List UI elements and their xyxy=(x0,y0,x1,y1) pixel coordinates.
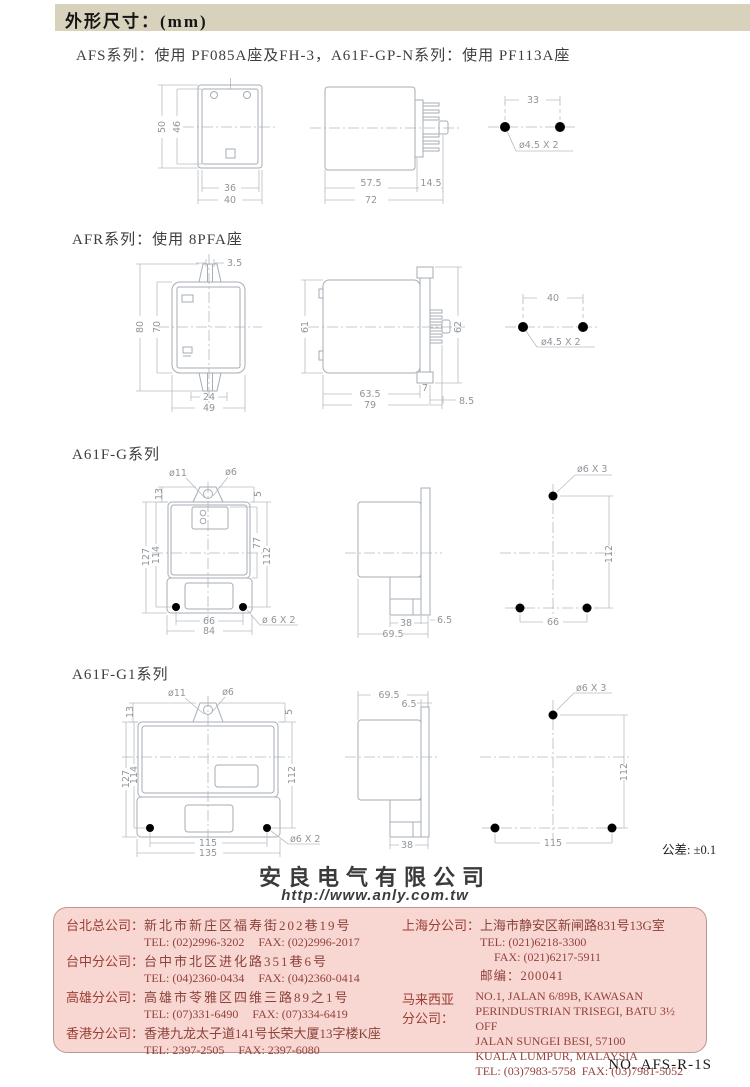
a61fg1-dim-width-outer: 135 xyxy=(199,848,217,859)
contact-address: 台中市北区进化路351巷6号 xyxy=(144,954,328,969)
a61fg1-dim-height-inner: 114 xyxy=(129,766,140,784)
a61fg1-dim-total-depth: 69.5 xyxy=(378,690,399,701)
a61fg1-top-hole2-label: ø6 xyxy=(222,687,234,698)
afr-dim-tab-slot: 3.5 xyxy=(227,258,242,269)
a61fg-drawings: ø11 ø6 13 5 127 114 77 112 66 84 ø xyxy=(0,458,750,658)
contact-row-shanghai: 上海分公司：上海市静安区新闸路831号13G室 TEL: (021)6218-3… xyxy=(402,915,698,984)
afs-hole-pattern: 33 ø4.5 X 2 xyxy=(488,95,575,151)
contact-phone: TEL: (07)331-6490FAX: (07)334-6419 xyxy=(66,1007,402,1022)
afr-dim-flange: 7 xyxy=(422,383,428,394)
contact-label: 高雄分公司： xyxy=(66,990,144,1005)
contact-row-hongkong: 香港分公司：香港九龙太子道141号长荣大厦13字楼K座 TEL: 2397-25… xyxy=(66,1023,402,1058)
a61fg-dim-vertical-pitch: 112 xyxy=(604,545,615,563)
tel: TEL: (021)6218-3300 xyxy=(480,935,586,950)
afr-dim-width-outer: 49 xyxy=(203,403,215,414)
afr-drawings: 3.5 80 70 24 49 61 62 63.5 7 79 8. xyxy=(0,248,750,433)
afr-dim-height-outer: 80 xyxy=(135,321,146,333)
contact-address: 新北市新庄区福寿街202巷19号 xyxy=(144,918,352,933)
a61fg1-section-title: A61F-G1系列 xyxy=(72,663,169,684)
a61fg-hole-label: ø6 X 3 xyxy=(577,464,607,475)
contact-label: 香港分公司： xyxy=(66,1026,144,1041)
a61fg-front-view: ø11 ø6 13 5 127 114 77 112 66 84 ø xyxy=(141,467,298,637)
a61fg-top-hole-label: ø11 xyxy=(169,468,187,479)
postal-code: 邮编：200041 xyxy=(402,965,698,984)
afs-front-view: 50 46 36 40 xyxy=(157,78,278,206)
a61fg1-side-view: 69.5 6.5 38 xyxy=(345,690,440,851)
a61fg1-dim-flange: 6.5 xyxy=(401,699,416,710)
afr-dim-height-left: 61 xyxy=(300,321,311,333)
a61fg-dim-tab-offset: 5 xyxy=(253,491,264,497)
afr-hole-pattern: 40 ø4.5 X 2 xyxy=(505,293,600,348)
contact-address: 香港九龙太子道141号长荣大厦13字楼K座 xyxy=(144,1026,381,1041)
a61fg-front-hole-label: ø 6 X 2 xyxy=(262,615,295,626)
a61fg-dim-width-outer: 84 xyxy=(203,626,215,637)
afr-side-view: 61 62 63.5 7 79 8.5 xyxy=(300,267,474,411)
afr-front-view: 3.5 80 70 24 49 xyxy=(135,254,262,414)
afr-dim-total-depth: 79 xyxy=(364,400,376,411)
a61fg1-front-hole-label: ø6 X 2 xyxy=(290,834,320,845)
address-line: PERINDUSTRIAN TRISEGI, BATU 3½ OFF xyxy=(475,1004,698,1034)
a61fg1-dim-tab-height: 13 xyxy=(125,706,136,718)
afr-section-title: AFR系列：使用 8PFA座 xyxy=(72,228,243,249)
afs-dim-height-inner: 46 xyxy=(172,121,183,133)
a61fg-dim-horizontal-pitch: 66 xyxy=(547,617,559,628)
a61fg-dim-hole-height: 112 xyxy=(262,547,273,565)
a61fg1-dim-vertical-pitch: 112 xyxy=(619,763,630,781)
contact-label: 台北总公司： xyxy=(66,918,144,933)
a61fg-dim-flange: 6.5 xyxy=(437,615,452,626)
address-line: NO.1, JALAN 6/89B, KAWASAN xyxy=(475,989,698,1004)
contact-phone: TEL: (02)2996-3202FAX: (02)2996-2017 xyxy=(66,935,402,950)
a61fg1-dim-hole-height: 112 xyxy=(287,766,298,784)
contact-row-taipei: 台北总公司：新北市新庄区福寿街202巷19号 TEL: (02)2996-320… xyxy=(66,915,402,950)
a61fg-side-view: 38 6.5 69.5 xyxy=(345,488,452,640)
a61fg-hole-pattern: 112 66 ø6 X 3 xyxy=(500,464,615,628)
contact-box: 台北总公司：新北市新庄区福寿街202巷19号 TEL: (02)2996-320… xyxy=(53,907,707,1053)
contact-address: 高雄市苓雅区四维三路89之1号 xyxy=(144,990,350,1005)
afr-dim-body-depth: 63.5 xyxy=(359,389,380,400)
afs-dim-hole-pitch: 33 xyxy=(527,95,539,106)
afs-section-title: AFS系列：使用 PF085A座及FH-3，A61F-GP-N系列：使用 PF1… xyxy=(76,44,570,65)
contact-label: 上海分公司： xyxy=(402,918,480,933)
afr-dim-width-inner: 24 xyxy=(203,392,215,403)
afs-dim-width-outer: 40 xyxy=(224,195,236,206)
a61fg-dim-tab-height: 13 xyxy=(154,488,165,500)
tolerance-note: 公差: ±0.1 xyxy=(662,839,716,858)
afr-dim-pin-depth: 8.5 xyxy=(459,396,474,407)
a61fg-top-hole2-label: ø6 xyxy=(225,467,237,478)
tel: TEL: 2397-2505 xyxy=(144,1043,224,1058)
afr-hole-label: ø4.5 X 2 xyxy=(541,337,581,348)
a61fg1-hole-pattern: 112 115 ø6 X 3 xyxy=(480,683,632,849)
afs-hole-label: ø4.5 X 2 xyxy=(519,140,559,151)
a61fg1-drawings: ø11 ø6 13 5 127 114 112 115 135 ø6 X 2 xyxy=(0,682,750,872)
contact-phone: TEL: 2397-2505FAX: 2397-6080 xyxy=(66,1043,402,1058)
tel: TEL: (04)2360-0434 xyxy=(144,971,244,986)
contact-right-column: 上海分公司：上海市静安区新闸路831号13G室 TEL: (021)6218-3… xyxy=(402,915,698,1048)
afs-dim-total-depth: 72 xyxy=(365,195,377,206)
a61fg1-hole-label: ø6 X 3 xyxy=(576,683,606,694)
address-line: JALAN SUNGEI BESI, 57100 xyxy=(475,1034,698,1049)
label-line1: 马来西亚 xyxy=(402,989,468,1008)
a61fg-dim-height-inner: 114 xyxy=(151,546,162,564)
fax: FAX: (02)2996-2017 xyxy=(258,935,359,950)
fax: FAX: (021)6217-5911 xyxy=(494,950,601,965)
contact-left-column: 台北总公司：新北市新庄区福寿街202巷19号 TEL: (02)2996-320… xyxy=(66,915,402,1048)
afs-drawings: 50 46 36 40 57.5 14.5 72 33 ø4.5 X 2 xyxy=(0,78,750,218)
a61fg-dim-lower-depth: 38 xyxy=(400,618,412,629)
afs-dim-pin-depth: 14.5 xyxy=(420,178,441,189)
a61fg1-dim-horizontal-pitch: 115 xyxy=(544,838,562,849)
afr-dim-height-inner: 70 xyxy=(152,321,163,333)
fax: FAX: 2397-6080 xyxy=(238,1043,319,1058)
contact-label: 台中分公司： xyxy=(66,954,144,969)
contact-phone: TEL: (021)6218-3300FAX: (021)6217-5911 xyxy=(402,935,698,965)
a61fg1-top-hole-label: ø11 xyxy=(168,688,186,699)
afs-side-view: 57.5 14.5 72 xyxy=(310,87,460,206)
afs-dim-body-depth: 57.5 xyxy=(360,178,381,189)
company-website: http://www.anly.com.tw xyxy=(0,887,750,904)
contact-address: 上海市静安区新闸路831号13G室 xyxy=(480,918,665,933)
afs-dim-width-inner: 36 xyxy=(224,183,236,194)
afr-dim-height-right: 62 xyxy=(453,321,464,333)
fax: FAX: (04)2360-0414 xyxy=(258,971,359,986)
contact-phone: TEL: (04)2360-0434FAX: (04)2360-0414 xyxy=(66,971,402,986)
label-line2: 分公司： xyxy=(402,1008,468,1027)
fax: FAX: (07)334-6419 xyxy=(252,1007,347,1022)
afr-dim-hole-pitch: 40 xyxy=(547,293,559,304)
a61fg1-dim-tab-offset: 5 xyxy=(284,709,295,715)
contact-row-kaohsiung: 高雄分公司：高雄市苓雅区四维三路89之1号 TEL: (07)331-6490F… xyxy=(66,987,402,1022)
afs-dim-height-outer: 50 xyxy=(157,121,168,133)
page-title: 外形尺寸：(mm) xyxy=(65,7,208,32)
document-number: NO. AFS-R-1S xyxy=(0,1057,712,1074)
a61fg1-dim-lower-depth: 38 xyxy=(401,840,413,851)
tel: TEL: (02)2996-3202 xyxy=(144,935,244,950)
contact-row-taichung: 台中分公司：台中市北区进化路351巷6号 TEL: (04)2360-0434F… xyxy=(66,951,402,986)
title-bar: 外形尺寸：(mm) xyxy=(55,4,750,31)
tel: TEL: (07)331-6490 xyxy=(144,1007,238,1022)
a61fg1-front-view: ø11 ø6 13 5 127 114 112 115 135 ø6 X 2 xyxy=(121,687,320,859)
a61fg-dim-total-depth: 69.5 xyxy=(382,629,403,640)
